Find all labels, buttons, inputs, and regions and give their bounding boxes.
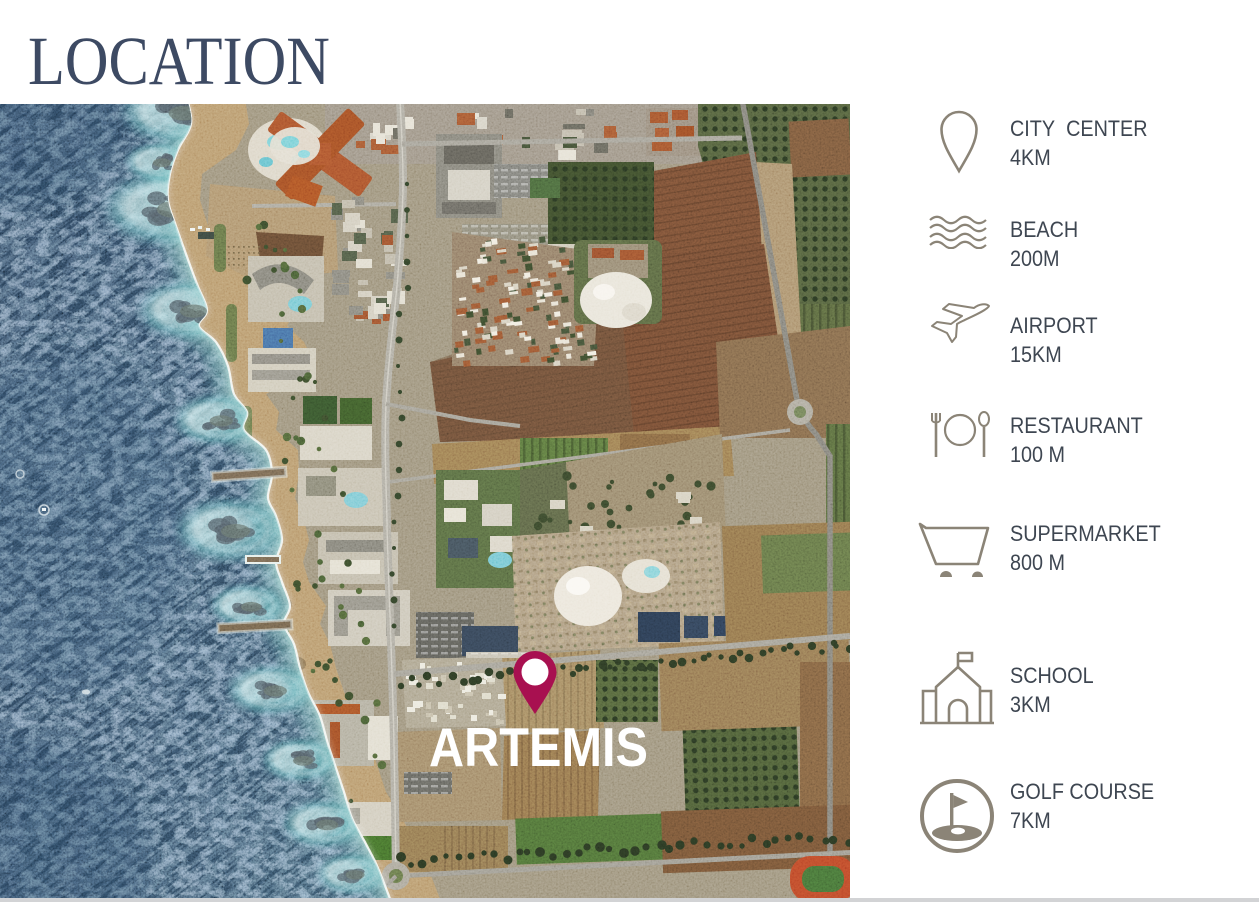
- svg-text:ARTEMIS: ARTEMIS: [429, 716, 648, 778]
